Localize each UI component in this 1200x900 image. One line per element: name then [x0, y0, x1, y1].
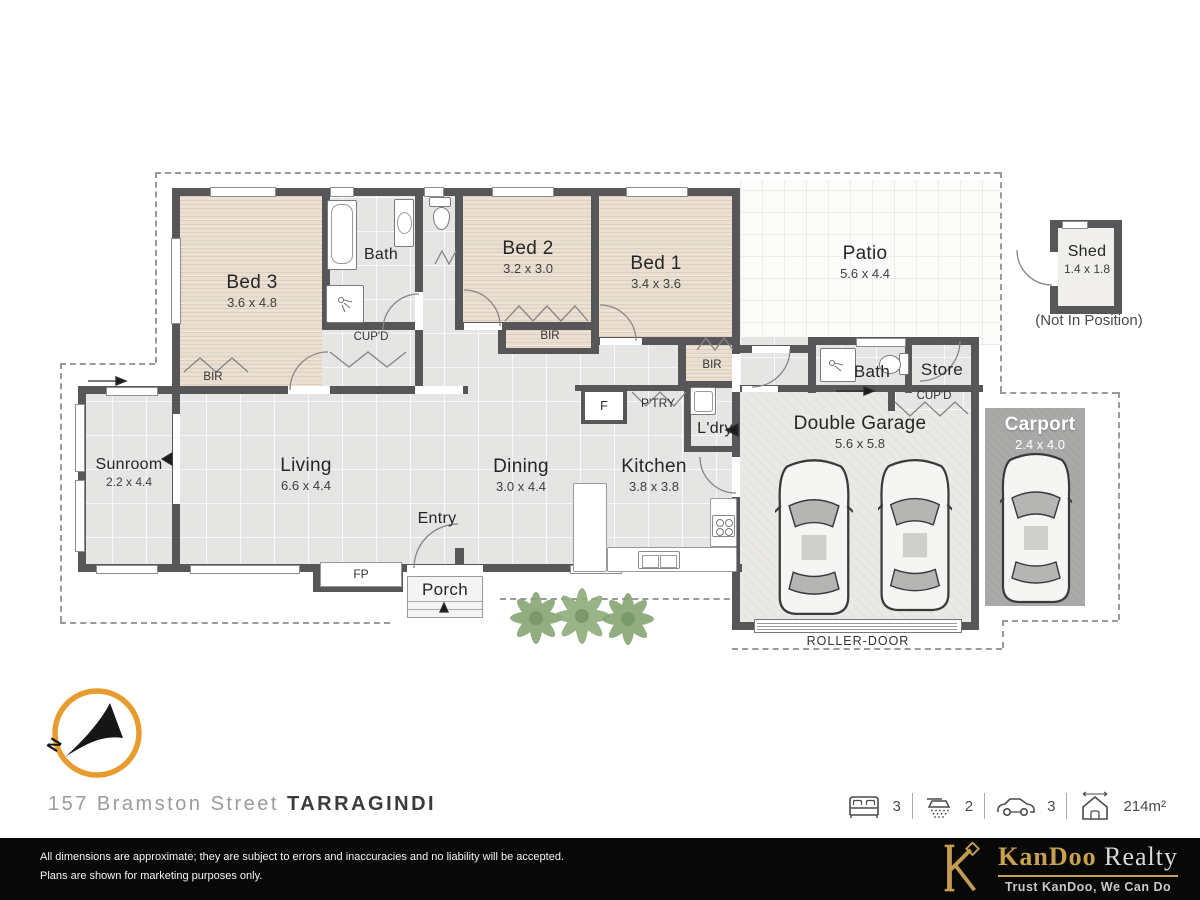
- wall: [971, 337, 979, 630]
- boundary-dash: [1002, 620, 1118, 622]
- boundary-dash: [155, 172, 1000, 174]
- north-compass: N: [45, 681, 149, 785]
- label-bir: BIR: [203, 371, 222, 383]
- burner: [716, 519, 724, 527]
- room-label-patio: Patio 5.6 x 4.4: [840, 243, 890, 281]
- shower: [326, 285, 364, 323]
- brand-name-silver: Realty: [1104, 842, 1178, 871]
- room-dims: 1.4 x 1.8: [1064, 262, 1110, 276]
- roller-slat: [757, 626, 957, 627]
- address-suburb: TARRAGINDI: [287, 793, 436, 815]
- bed-icon: [847, 793, 881, 819]
- room-dims: 5.6 x 5.8: [794, 436, 927, 451]
- palm-trees: [500, 588, 665, 652]
- room-name: Entry: [418, 510, 457, 528]
- window: [492, 187, 554, 197]
- roller-slat: [757, 629, 957, 630]
- door-opening: [732, 457, 740, 497]
- label-bir: BIR: [540, 330, 559, 342]
- boundary-dash: [60, 363, 155, 365]
- door-opening: [288, 386, 330, 394]
- door-opening-sunroom: [173, 414, 180, 504]
- sink-bowl: [642, 555, 659, 568]
- room-label-bath1: Bath: [364, 246, 398, 264]
- room-label-shed: Shed 1.4 x 1.8: [1064, 243, 1110, 276]
- brand-name-gold: KanDoo: [998, 842, 1096, 871]
- window: [190, 565, 300, 574]
- disclaimer-line-1: All dimensions are approximate; they are…: [40, 848, 564, 867]
- bathtub: [327, 200, 357, 270]
- stats-divider: [912, 793, 913, 819]
- window: [1062, 221, 1088, 229]
- wall: [684, 446, 740, 452]
- porch-step: [408, 609, 482, 610]
- room-name: Bath: [854, 362, 890, 382]
- beds-count: 3: [892, 798, 900, 815]
- compass-arrow: [65, 703, 123, 757]
- baths-count: 2: [965, 798, 973, 815]
- roller-door: [754, 619, 962, 633]
- room-name: Kitchen: [621, 456, 686, 478]
- kitchen-sink: [638, 551, 680, 569]
- room-label-garage: Double Garage 5.6 x 5.8: [794, 413, 927, 451]
- basin: [397, 212, 412, 234]
- label-fp: FP: [353, 567, 368, 581]
- boundary-dash: [1118, 392, 1120, 620]
- window: [856, 338, 906, 347]
- door-opening-shed: [1050, 252, 1058, 286]
- room-label-living: Living 6.6 x 4.4: [280, 455, 331, 493]
- window: [106, 387, 158, 396]
- car-stat-icon: [996, 793, 1036, 819]
- brand-tagline: Trust KanDoo, We Can Do: [1005, 880, 1171, 894]
- room-label-porch: Porch: [422, 580, 468, 600]
- room-dims: 3.4 x 3.6: [630, 276, 681, 291]
- kandoo-k-icon: [936, 842, 986, 894]
- room-dims: 3.6 x 4.8: [226, 295, 277, 310]
- room-name: Bed 2: [502, 238, 553, 260]
- wall: [322, 322, 423, 330]
- disclaimer: All dimensions are approximate; they are…: [40, 848, 564, 887]
- door-arc-shed: [1017, 250, 1052, 285]
- door-opening: [464, 323, 502, 330]
- brand-logo: KanDoo Realty Trust KanDoo, We Can Do: [936, 842, 1178, 894]
- room-dims: 3.8 x 3.8: [621, 479, 686, 494]
- label-fridge: F: [600, 398, 608, 413]
- room-label-kitchen: Kitchen 3.8 x 3.8: [621, 456, 686, 494]
- window: [330, 187, 354, 197]
- boundary-dash: [732, 648, 1002, 650]
- room-dims: 3.0 x 4.4: [493, 479, 549, 494]
- toilet-tank: [429, 197, 451, 207]
- room-dims: 5.6 x 4.4: [840, 266, 890, 281]
- cars-count: 3: [1047, 798, 1055, 815]
- room-name: Patio: [840, 243, 890, 265]
- window: [171, 238, 181, 324]
- disclaimer-line-2: Plans are shown for marketing purposes o…: [40, 867, 564, 886]
- room-label-store: Store: [921, 360, 963, 380]
- boundary-dash: [60, 622, 390, 624]
- property-stats: 3 2 3 214m²: [847, 791, 1166, 821]
- shower-icon: [924, 792, 954, 820]
- floor-area: 214m²: [1123, 798, 1166, 815]
- vanity-basin: [394, 199, 414, 247]
- room-label-entry: Entry: [418, 510, 457, 528]
- kitchen-island: [573, 483, 607, 572]
- room-name: Living: [280, 455, 331, 477]
- brand-title: KanDoo Realty: [998, 842, 1178, 872]
- roller-slat: [757, 623, 957, 624]
- room-name: Store: [921, 360, 963, 380]
- brand-text: KanDoo Realty Trust KanDoo, We Can Do: [998, 842, 1178, 894]
- wall: [888, 385, 895, 411]
- window: [75, 480, 85, 552]
- room-name: Bed 3: [226, 272, 277, 294]
- boundary-dash: [60, 363, 62, 622]
- shed-note: (Not In Position): [1035, 312, 1143, 329]
- wall: [455, 196, 463, 330]
- bathtub-inner: [331, 204, 353, 264]
- room-dims: 6.6 x 4.4: [280, 478, 331, 493]
- stats-divider: [984, 793, 985, 819]
- shower-2: [820, 348, 856, 382]
- room-label-ldry: L'dry: [697, 420, 733, 438]
- room-name: Shed: [1064, 243, 1110, 261]
- burner: [716, 528, 724, 536]
- room-name: Double Garage: [794, 413, 927, 435]
- door-opening: [415, 386, 463, 394]
- room-dims: 2.4 x 4.0: [1005, 437, 1076, 452]
- car-icon: [1000, 446, 1072, 606]
- boundary-dash: [155, 172, 157, 363]
- window: [96, 565, 158, 574]
- door-opening: [752, 346, 790, 353]
- room-label-bath2: Bath: [854, 362, 890, 382]
- sink-bowl: [660, 555, 677, 568]
- room-name: Porch: [422, 580, 468, 600]
- door-opening: [742, 386, 778, 392]
- porch-step: [408, 601, 482, 602]
- room-name: Dining: [493, 456, 549, 478]
- room-label-dining: Dining 3.0 x 4.4: [493, 456, 549, 494]
- property-address: 157 Bramston Street TARRAGINDI: [48, 793, 436, 816]
- palm-tree: [510, 588, 654, 645]
- room-label-carport: Carport 2.4 x 4.0: [1005, 414, 1076, 452]
- door-opening-porch: [407, 565, 483, 574]
- room-label-bed1: Bed 1 3.4 x 3.6: [630, 253, 681, 291]
- room-name: Bed 1: [630, 253, 681, 275]
- door-opening: [415, 292, 423, 330]
- laundry-tub: [690, 387, 716, 415]
- boundary-dash: [1000, 172, 1002, 392]
- footer-bar: All dimensions are approximate; they are…: [0, 838, 1200, 900]
- room-dims: 2.2 x 4.4: [95, 475, 162, 489]
- room-name: Carport: [1005, 414, 1076, 436]
- label-bir: BIR: [702, 359, 721, 371]
- room-name: Bath: [364, 246, 398, 264]
- window: [626, 187, 688, 197]
- burner: [725, 519, 733, 527]
- door-opening: [600, 338, 642, 345]
- house-area-icon: [1078, 791, 1112, 821]
- laundry-tub-inner: [694, 391, 713, 412]
- label-pantry: P'TRY: [641, 396, 675, 410]
- room-dims: 3.2 x 3.0: [502, 261, 553, 276]
- room-label-sunroom: Sunroom 2.2 x 4.4: [95, 456, 162, 489]
- burner: [725, 528, 733, 536]
- car-icon: [878, 452, 952, 614]
- floorplan-page: Bed 3 3.6 x 4.8 Bath Bed 2 3.2 x 3.0 Bed…: [0, 0, 1200, 900]
- window: [210, 187, 276, 197]
- stats-divider: [1066, 793, 1067, 819]
- brand-rule: [998, 875, 1178, 877]
- room-name: Sunroom: [95, 456, 162, 474]
- boundary-dash: [1000, 392, 1118, 394]
- window: [75, 404, 85, 472]
- entry-arrow-head: [116, 377, 126, 385]
- room-label-bed2: Bed 2 3.2 x 3.0: [502, 238, 553, 276]
- room-name: L'dry: [697, 420, 733, 438]
- door-opening: [732, 354, 740, 392]
- boundary-dash: [1002, 620, 1004, 648]
- address-street: 157 Bramston Street: [48, 793, 279, 815]
- car-icon: [775, 452, 853, 618]
- label-cupd: CUP'D: [354, 331, 389, 343]
- wall: [498, 348, 599, 354]
- window: [424, 187, 444, 197]
- label-cupd: CUP'D: [917, 390, 952, 402]
- room-label-bed3: Bed 3 3.6 x 4.8: [226, 272, 277, 310]
- label-roller-door: ROLLER-DOOR: [807, 634, 910, 648]
- stove-cooktop: [712, 515, 735, 537]
